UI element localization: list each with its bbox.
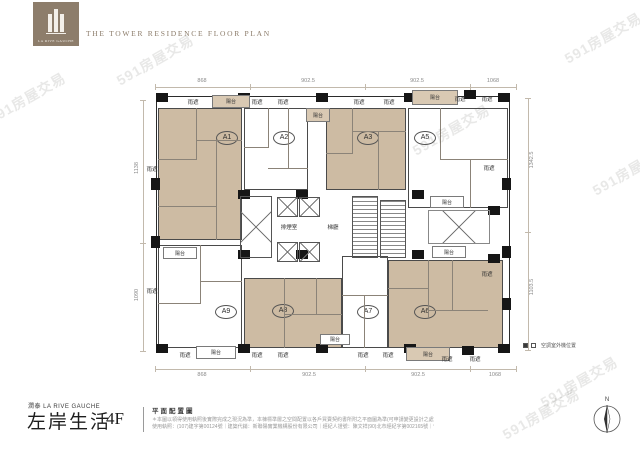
project-name: 左岸生活: [27, 407, 111, 434]
canopy-label: 雨遮: [277, 98, 288, 106]
column: [412, 250, 424, 259]
balcony: 陽台: [432, 246, 466, 258]
dim-label: 1103.5: [529, 279, 535, 295]
wall: [428, 310, 488, 311]
dim-line: [525, 350, 531, 351]
dim-line: [525, 98, 531, 99]
canopy-label: 雨遮: [441, 355, 452, 363]
wall: [196, 140, 242, 141]
wall: [268, 168, 308, 169]
balcony: 陽台: [306, 108, 330, 122]
column: [156, 93, 168, 102]
dim-line: [365, 366, 366, 372]
dim-line: [155, 366, 156, 372]
canopy-label: 雨遮: [357, 351, 368, 359]
watermark: 591房屋交易: [0, 68, 70, 129]
legend-note: 空調室外機位置: [541, 342, 576, 349]
wall: [388, 288, 429, 289]
wall: [158, 303, 201, 304]
wall: [216, 141, 217, 240]
dim-line: [155, 87, 517, 88]
unit-label-a6: A6: [414, 305, 436, 319]
dim-line: [155, 369, 517, 370]
unit-label-a8: A8: [272, 304, 294, 318]
wall: [284, 314, 342, 315]
dim-label: 902.5: [411, 372, 425, 378]
canopy-label: 雨遮: [481, 270, 492, 278]
svg-text:N: N: [605, 397, 609, 403]
legend-swatch-outline: [531, 343, 536, 348]
wall: [158, 206, 216, 207]
column: [502, 246, 511, 258]
dim-line: [525, 232, 531, 233]
unit-label-a1: A1: [216, 131, 238, 145]
unit-a2: [244, 108, 308, 190]
wall: [440, 108, 441, 160]
unit-label-a5: A5: [414, 131, 436, 145]
balcony: 陽台: [163, 247, 197, 259]
plan-type-label: 平面配置圖: [152, 405, 195, 415]
wall: [196, 108, 197, 160]
floor-plan-page: LA RIVE GAUCHE THE TOWER RESIDENCE FLOOR…: [0, 0, 640, 453]
lobby-label: 梯廳: [327, 223, 338, 231]
wall: [364, 295, 365, 348]
logo-brand-text: LA RIVE GAUCHE: [33, 39, 79, 43]
column: [462, 346, 474, 355]
column: [502, 178, 511, 190]
wall: [200, 281, 242, 282]
dim-line: [140, 351, 146, 352]
balcony: 陽台: [412, 90, 458, 105]
elevator-shaft: [240, 196, 272, 258]
wall: [440, 159, 508, 160]
dim-line: [470, 366, 471, 372]
watermark: 591房屋交易: [589, 140, 640, 201]
watermark: 591房屋交易: [499, 384, 584, 445]
dim-label: 902.5: [301, 78, 315, 84]
elevator-box: [277, 197, 298, 217]
stairs: [380, 200, 406, 258]
wall: [158, 159, 197, 160]
dim-label: 868: [197, 372, 206, 378]
dim-line: [470, 84, 471, 90]
unit-label-a3: A3: [357, 131, 379, 145]
canopy-label: 雨遮: [469, 355, 480, 363]
wall: [378, 131, 379, 190]
column: [316, 93, 328, 102]
unit-a1: [158, 108, 242, 240]
canopy-label: 雨遮: [277, 351, 288, 359]
canopy-label: 雨遮: [383, 98, 394, 106]
wall: [288, 108, 289, 168]
footer-divider: [143, 407, 144, 432]
brand-logo: LA RIVE GAUCHE: [33, 2, 79, 46]
column: [502, 298, 511, 310]
dim-line: [365, 84, 366, 90]
column: [238, 344, 250, 353]
balcony: 陽台: [320, 334, 350, 345]
column: [156, 344, 168, 353]
canopy-label: 雨遮: [146, 165, 157, 173]
wall: [200, 245, 201, 303]
dim-label: 1068: [489, 372, 501, 378]
column: [151, 178, 160, 190]
dim-line: [140, 243, 146, 244]
canopy-label: 雨遮: [251, 98, 262, 106]
watermark: 591房屋交易: [561, 8, 640, 69]
dim-label: 1090: [134, 289, 140, 301]
wall: [244, 147, 269, 148]
column: [464, 90, 476, 99]
wall: [342, 295, 388, 296]
unit-label-a9: A9: [215, 305, 237, 319]
dim-label: 1342.5: [529, 152, 535, 169]
stairs: [352, 196, 378, 258]
wall: [284, 278, 285, 348]
compass-icon: N: [589, 392, 625, 436]
wall: [470, 159, 471, 208]
column: [498, 344, 510, 353]
dim-line: [143, 100, 144, 352]
dim-label: 902.5: [302, 372, 316, 378]
elevator-box: [299, 242, 320, 262]
wall: [326, 153, 353, 154]
dim-label: 1138: [134, 162, 140, 174]
dim-line: [516, 366, 517, 372]
canopy-label: 雨遮: [483, 164, 494, 172]
floor-number: 4F: [106, 409, 124, 429]
wall: [352, 131, 406, 132]
page-title: THE TOWER RESIDENCE FLOOR PLAN: [86, 29, 271, 38]
light-well: [428, 210, 490, 244]
smoke-room-label: 排煙室: [281, 223, 298, 231]
canopy-label: 雨遮: [481, 95, 492, 103]
balcony: 陽台: [430, 196, 464, 208]
unit-label-a7: A7: [357, 305, 379, 319]
dim-label: 1068: [487, 78, 499, 84]
dim-label: 902.5: [410, 78, 424, 84]
dim-line: [528, 98, 529, 350]
canopy-label: 雨遮: [382, 351, 393, 359]
canopy-label: 雨遮: [454, 95, 465, 103]
balcony: 陽台: [212, 95, 250, 108]
canopy-label: 雨遮: [251, 351, 262, 359]
canopy-label: 雨遮: [187, 98, 198, 106]
disclaimer-line-1: ＊本圖以領得使用執照後實際完成之現況為準，本棟標準層之空間配置以各戶買賣契約書所…: [152, 416, 434, 423]
dim-line: [140, 100, 146, 101]
wall: [316, 278, 317, 315]
wall: [268, 108, 269, 148]
elevator-box: [299, 197, 320, 217]
watermark: 591房屋交易: [113, 30, 198, 91]
elevator-box: [277, 242, 298, 262]
legend-swatch-filled: [523, 343, 528, 348]
dim-line: [516, 84, 517, 90]
column: [498, 93, 510, 102]
column: [412, 190, 424, 199]
column: [151, 236, 160, 248]
canopy-label: 雨遮: [146, 287, 157, 295]
disclaimer-line-2: 使用執照：(107)建字第00124號｜建築代銷：新聯陽實業機構股份有限公司｜經…: [152, 423, 434, 430]
canopy-label: 雨遮: [179, 351, 190, 359]
wall: [452, 260, 453, 310]
canopy-label: 雨遮: [353, 98, 364, 106]
dim-label: 868: [197, 78, 206, 84]
column: [488, 254, 500, 263]
dim-line: [155, 84, 156, 90]
dim-line: [250, 84, 251, 90]
unit-label-a2: A2: [273, 131, 295, 145]
column: [316, 344, 328, 353]
balcony: 陽台: [196, 346, 236, 359]
dim-line: [250, 366, 251, 372]
unit-a3: [326, 108, 406, 190]
